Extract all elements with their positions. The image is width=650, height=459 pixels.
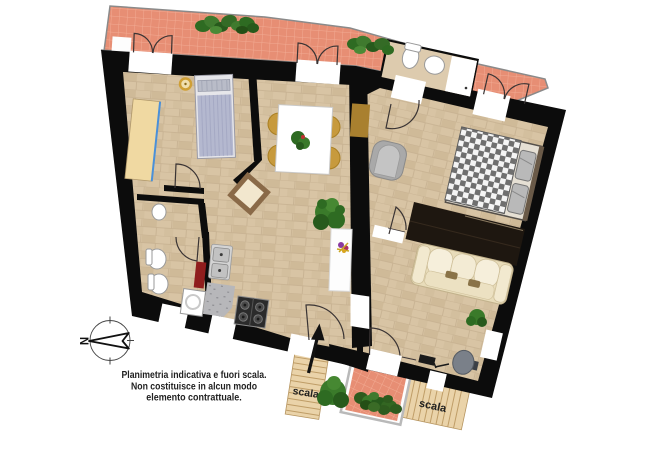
svg-text:Planimetria indicativa e fuori: Planimetria indicativa e fuori scala. — [122, 370, 267, 381]
svg-text:Non costituisce in alcun modo: Non costituisce in alcun modo — [131, 382, 257, 393]
svg-text:N: N — [80, 337, 92, 345]
svg-text:elemento contrattuale.: elemento contrattuale. — [146, 393, 242, 404]
